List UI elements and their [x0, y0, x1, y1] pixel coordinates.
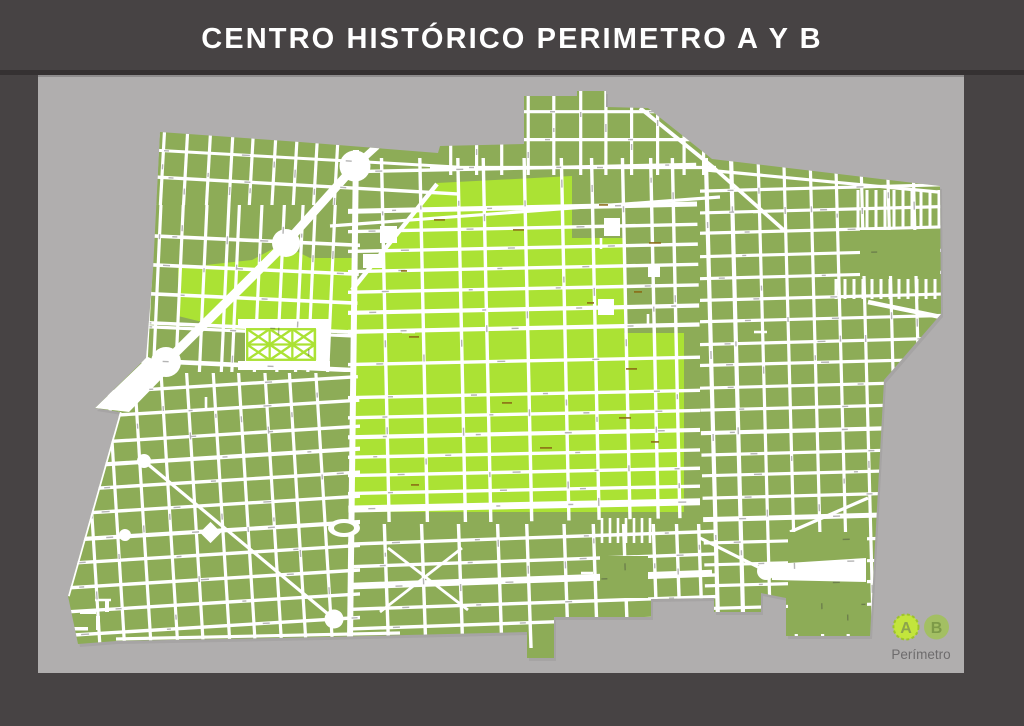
svg-text:B: B: [931, 620, 943, 637]
svg-text:Perímetro: Perímetro: [891, 647, 950, 662]
svg-text:A: A: [900, 620, 912, 637]
svg-text:CENTRO HISTÓRICO PERIMETRO A Y: CENTRO HISTÓRICO PERIMETRO A Y B: [201, 21, 822, 55]
